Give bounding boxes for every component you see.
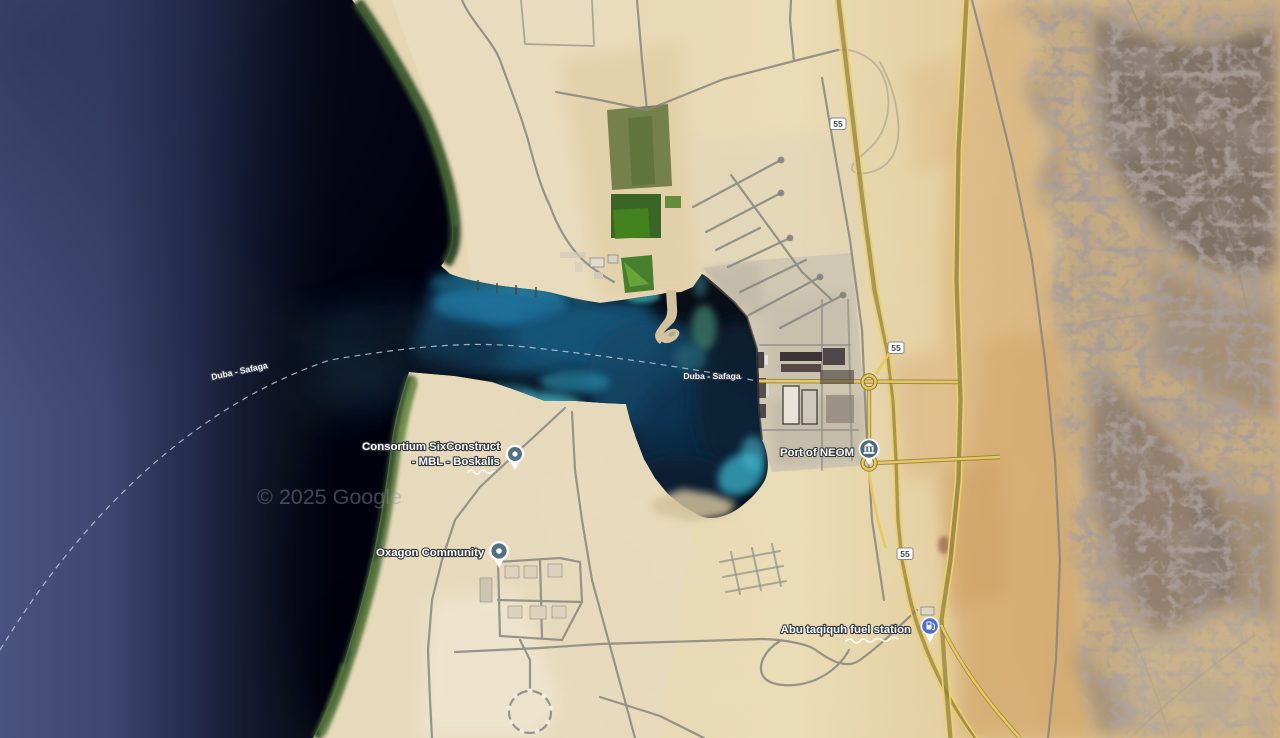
svg-text:© 2025 Google: © 2025 Google	[257, 485, 402, 509]
svg-text:Port of NEOM: Port of NEOM	[780, 447, 854, 459]
svg-text:55: 55	[833, 119, 843, 129]
svg-text:Consortium SixConstruct: Consortium SixConstruct	[362, 441, 500, 453]
svg-text:55: 55	[891, 343, 901, 353]
svg-text:Oxagon Community: Oxagon Community	[376, 547, 485, 559]
svg-text:55: 55	[900, 549, 910, 559]
svg-text:Duba - Safaga: Duba - Safaga	[683, 371, 741, 381]
svg-text:Abu taqiquh fuel station: Abu taqiquh fuel station	[781, 624, 911, 636]
svg-text:- MBL - Boskalis: - MBL - Boskalis	[412, 456, 500, 468]
